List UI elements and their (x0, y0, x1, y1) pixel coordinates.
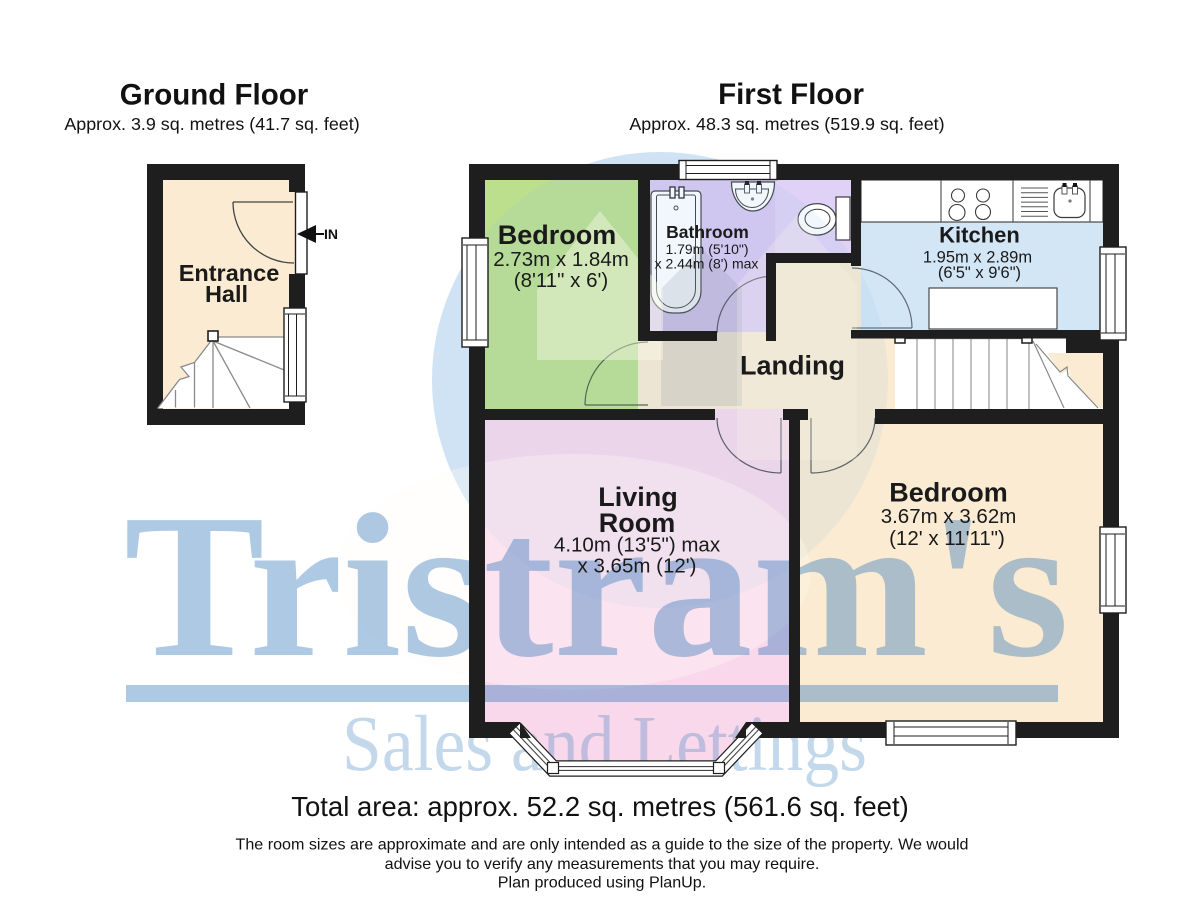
svg-text:Landing: Landing (740, 351, 845, 381)
svg-text:Ground Floor: Ground Floor (120, 79, 309, 112)
svg-text:x 3.65m (12'): x 3.65m (12') (578, 555, 697, 578)
svg-text:First Floor: First Floor (718, 78, 864, 111)
svg-text:advise you to verify any measu: advise you to verify any measurements th… (385, 855, 820, 873)
svg-text:4.10m (13'5") max: 4.10m (13'5") max (554, 534, 721, 557)
svg-text:Approx. 48.3 sq. metres (519.9: Approx. 48.3 sq. metres (519.9 sq. feet) (629, 114, 944, 134)
svg-text:Hall: Hall (205, 281, 248, 307)
svg-text:(6'5" x 9'6"): (6'5" x 9'6") (938, 264, 1021, 282)
svg-text:Total area: approx. 52.2 sq. m: Total area: approx. 52.2 sq. metres (561… (291, 791, 909, 822)
svg-text:Plan produced using PlanUp.: Plan produced using PlanUp. (498, 874, 706, 892)
svg-text:Bedroom: Bedroom (498, 220, 617, 250)
svg-text:The room sizes are approximate: The room sizes are approximate and are o… (236, 836, 969, 854)
svg-text:Bedroom: Bedroom (889, 478, 1008, 508)
svg-text:x 2.44m (8') max: x 2.44m (8') max (655, 256, 759, 272)
svg-text:IN: IN (324, 226, 338, 242)
svg-text:Bathroom: Bathroom (666, 222, 749, 242)
svg-text:Kitchen: Kitchen (939, 223, 1020, 248)
svg-text:(8'11" x 6'): (8'11" x 6') (514, 269, 608, 292)
svg-text:2.73m x 1.84m: 2.73m x 1.84m (493, 248, 629, 271)
svg-text:3.67m x 3.62m: 3.67m x 3.62m (881, 505, 1017, 528)
svg-text:Approx. 3.9 sq. metres (41.7 s: Approx. 3.9 sq. metres (41.7 sq. feet) (64, 114, 359, 134)
svg-text:(12' x 11'11"): (12' x 11'11") (889, 527, 1005, 550)
